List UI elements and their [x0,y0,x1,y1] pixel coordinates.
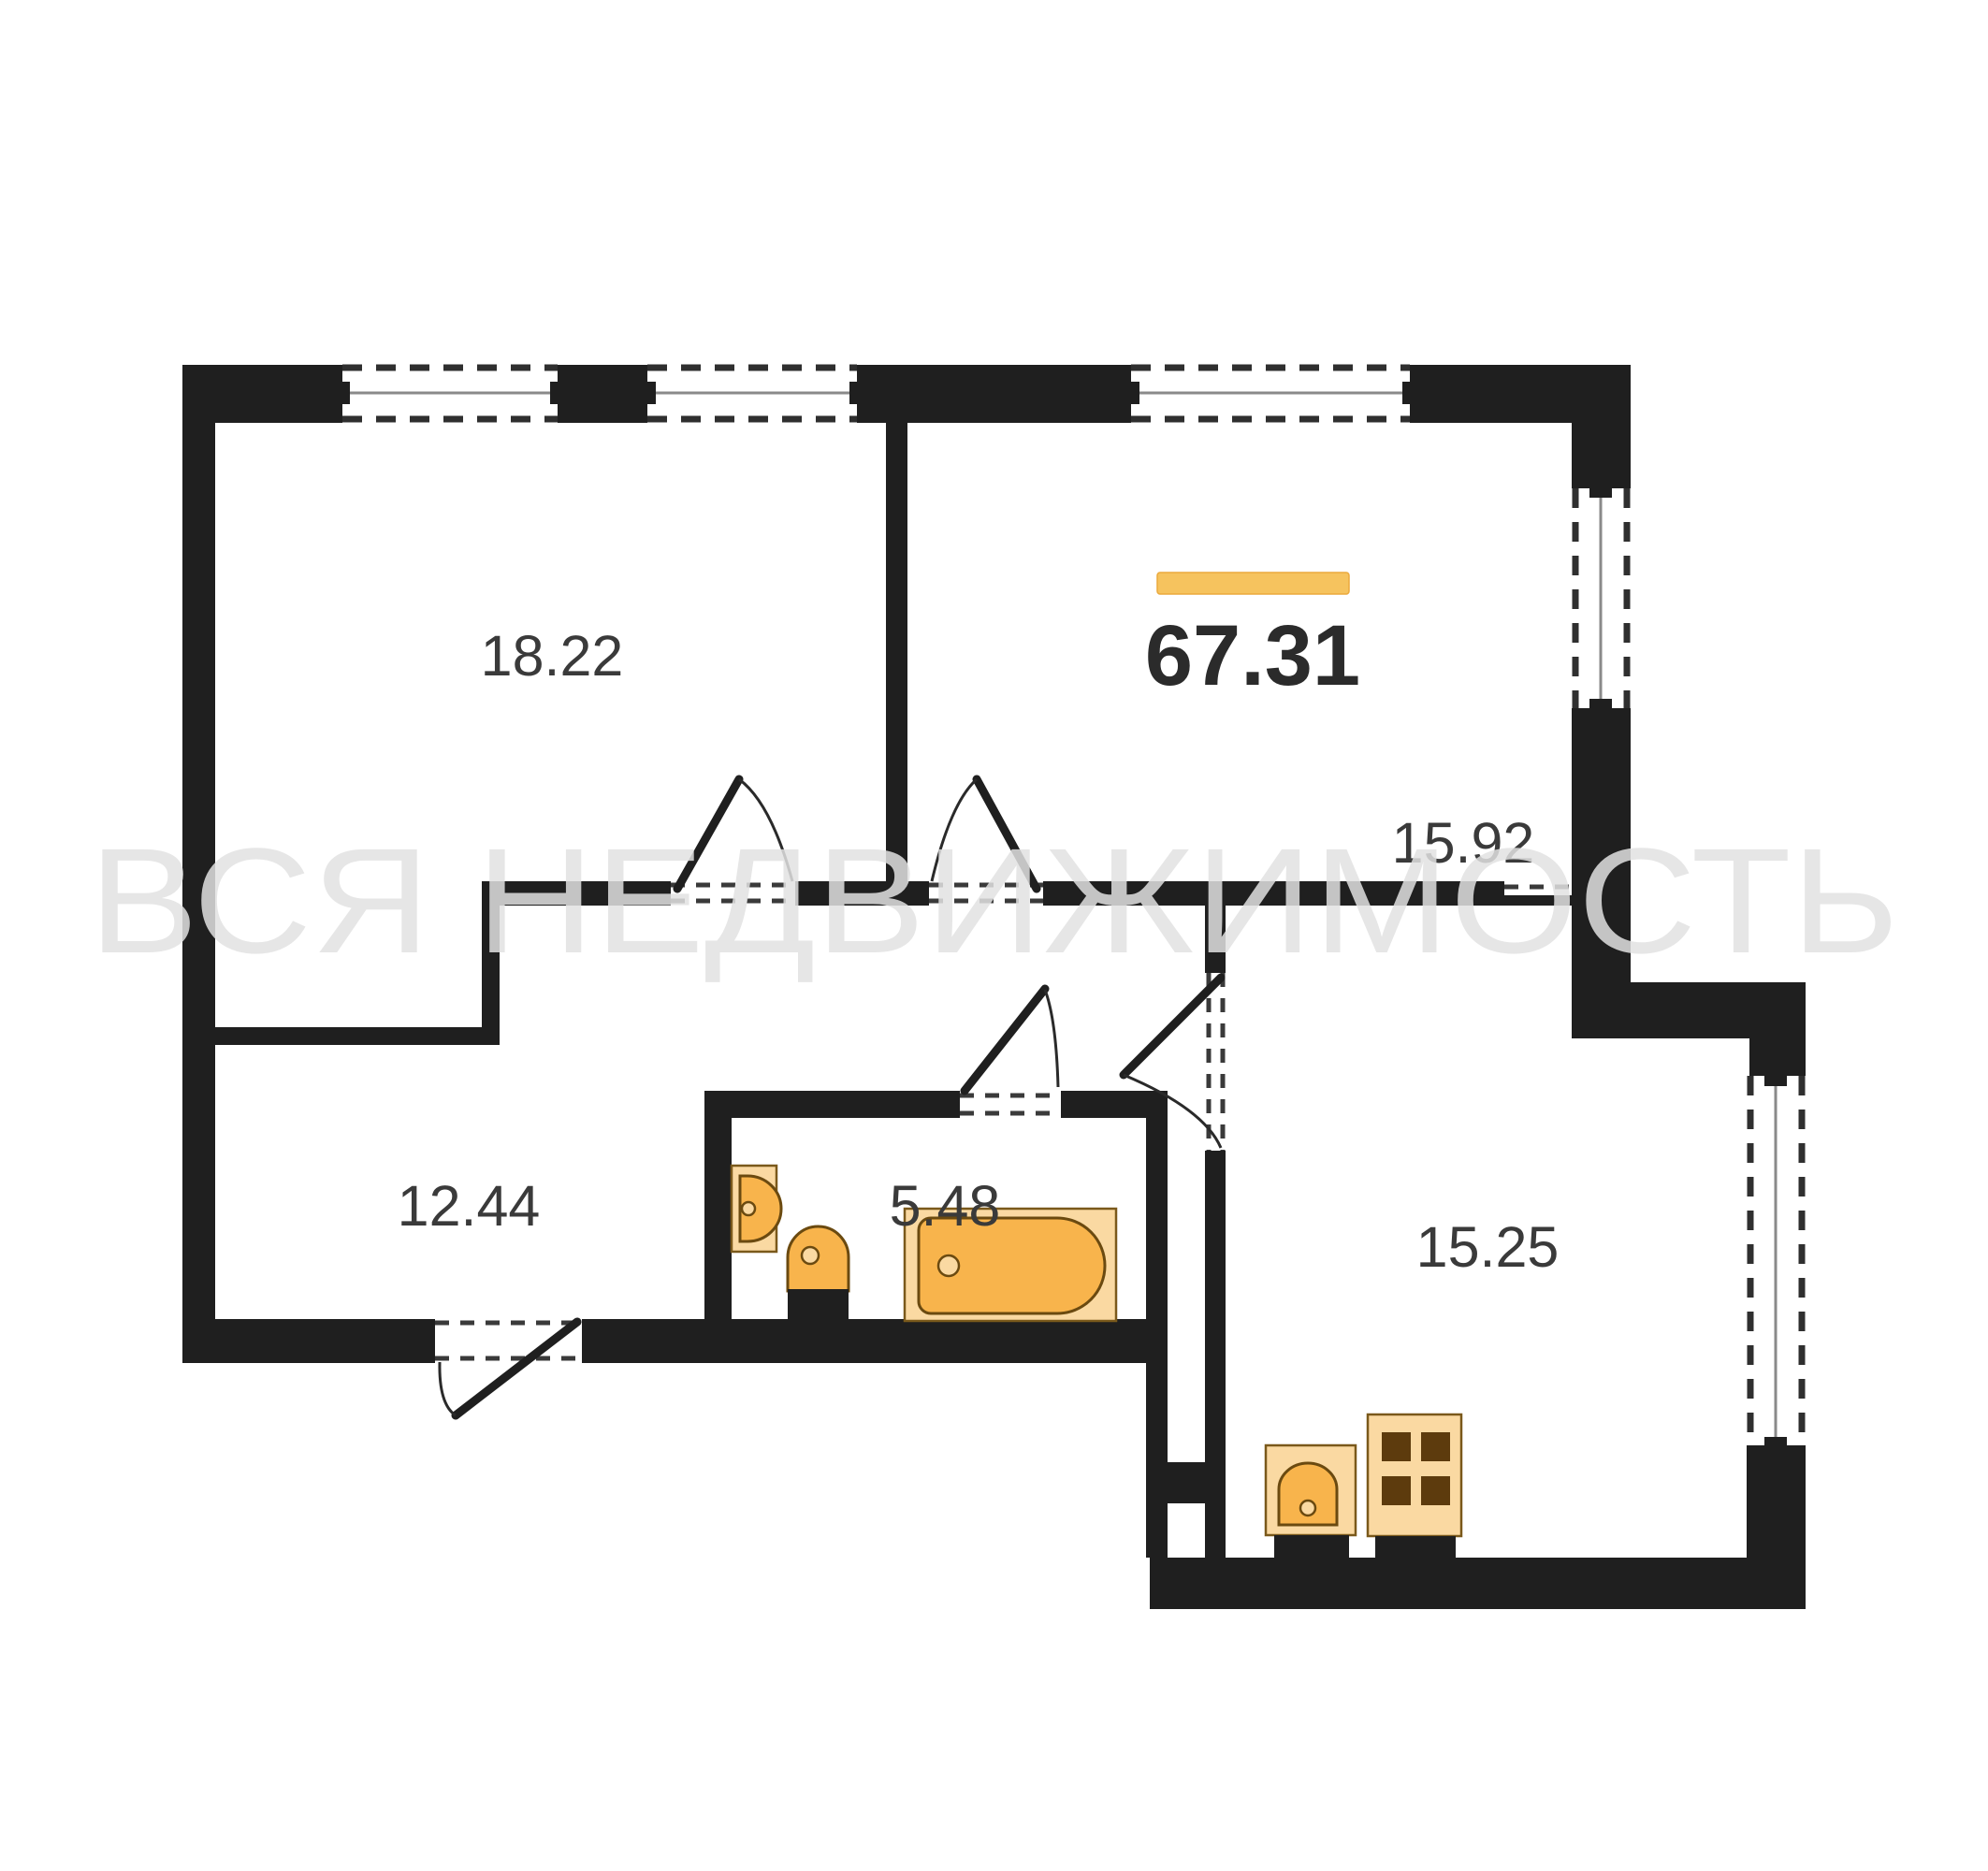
window-top-a [334,368,566,419]
floor-plan-page: 67.31 18.22 15.92 12.44 5.48 15.25 ВСЯ Н… [0,0,1988,1871]
kitchen-sink-icon [1266,1445,1356,1558]
room-area-label-lower-left: 12.44 [398,1174,541,1238]
wall-kitchen-bottom [1150,1558,1806,1609]
wall-top-pier-1 [558,365,647,423]
room-area-label-bathroom: 5.48 [890,1174,1001,1238]
wall-alcove-bottom [182,1027,498,1045]
wall-hall-right [1146,1118,1168,1558]
door-kitchen [1124,973,1223,1151]
room-area-label-living: 18.22 [481,624,624,688]
wall-right-upper [1572,365,1631,488]
total-area-label: 67.31 [1145,608,1360,703]
toilet-icon [788,1226,849,1321]
stove-icon [1368,1414,1461,1558]
total-area-highlight-bar [1157,573,1349,594]
door-bathroom [960,989,1061,1113]
window-top-b [640,368,865,419]
wall-bathroom-top-b [1061,1091,1168,1118]
wall-kitchen-corner [1749,982,1806,1076]
window-top-c [1124,368,1418,419]
wall-kitchen-left [1205,1151,1226,1558]
wall-bottom-left-b [582,1319,1168,1363]
walls [182,365,1806,1609]
wall-sink-icon [732,1166,781,1252]
window-kitchen-right [1750,1069,1802,1454]
wall-bottom-left-a [182,1319,435,1363]
window-right-upper [1575,481,1627,716]
wall-bathroom-left [704,1118,732,1319]
wall-bathroom-top-a [704,1091,960,1118]
door-entry [435,1322,582,1415]
floor-plan-drawing: 67.31 18.22 15.92 12.44 5.48 15.25 ВСЯ Н… [0,0,1988,1871]
room-area-label-kitchen: 15.25 [1416,1215,1560,1279]
watermark-text: ВСЯ НЕДВИЖИМОСТЬ [89,817,1899,984]
